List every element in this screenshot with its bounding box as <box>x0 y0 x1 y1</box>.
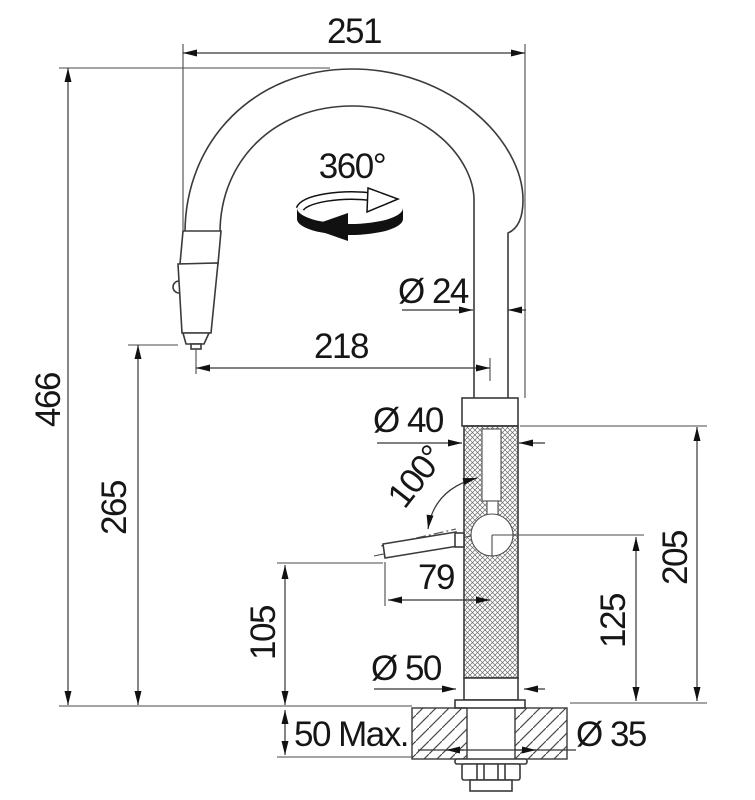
dim-218: 218 <box>196 327 490 381</box>
dim-dia24-label: Ø 24 <box>398 272 469 311</box>
dim-dia35-label: Ø 35 <box>576 715 646 754</box>
dim-dia50: Ø 50 <box>371 649 545 689</box>
dim-265-label: 265 <box>95 481 134 535</box>
base-trim-ring <box>455 700 525 708</box>
dim-265: 265 <box>95 345 178 705</box>
dim-105: 105 <box>244 563 383 705</box>
dim-50max: 50 Max. <box>277 710 412 757</box>
dim-105-label: 105 <box>244 606 283 660</box>
countertop-section <box>412 708 567 759</box>
dim-dia50-label: Ø 50 <box>371 649 442 688</box>
dim-218-label: 218 <box>314 327 368 366</box>
dim-205-label: 205 <box>656 531 695 585</box>
spray-head <box>173 231 221 349</box>
faucet-dimension-drawing: 251 466 265 218 Ø 24 Ø 40 100° 79 <box>0 0 755 800</box>
handle-slot <box>482 429 501 501</box>
dim-360deg: 360° <box>319 147 385 186</box>
dim-466-label: 466 <box>29 373 68 427</box>
handle <box>374 529 471 558</box>
dim-dia40-label: Ø 40 <box>373 401 444 440</box>
drawing-canvas: 251 466 265 218 Ø 24 Ø 40 100° 79 <box>0 0 755 800</box>
dim-100deg: 100° <box>380 439 477 529</box>
dim-dia40: Ø 40 <box>373 401 545 443</box>
rotation-360-icon <box>297 188 403 241</box>
dim-dia24: Ø 24 <box>398 272 526 311</box>
dim-100deg-label: 100° <box>380 439 452 515</box>
mounting-shank-and-nut <box>455 759 527 791</box>
dim-125-label: 125 <box>594 594 633 648</box>
dim-50max-label: 50 Max. <box>294 715 408 754</box>
dim-251-label: 251 <box>327 12 381 51</box>
faucet-body <box>455 398 525 708</box>
dim-79-label: 79 <box>418 558 454 597</box>
dim-205: 205 <box>520 426 707 701</box>
dim-360deg-label: 360° <box>319 147 385 186</box>
